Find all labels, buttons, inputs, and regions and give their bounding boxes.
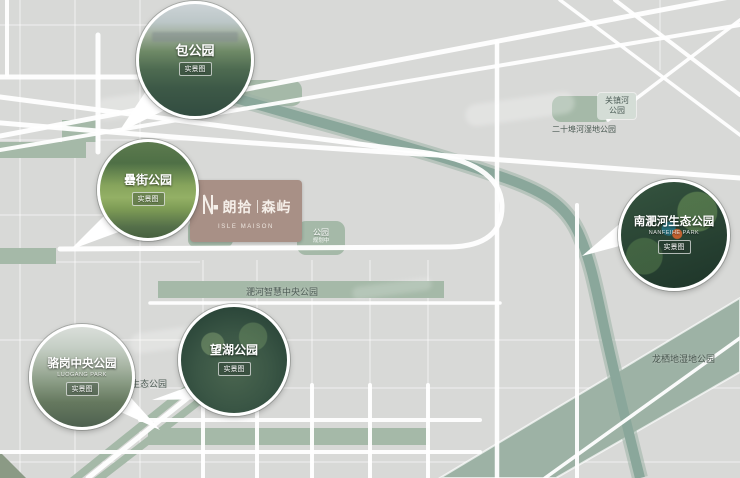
park-callout-wanghu: 望湖公园 实景图: [178, 304, 290, 416]
photo-badge: 实景图: [66, 382, 99, 396]
photo-badge: 实景图: [132, 192, 165, 206]
project-name-english: ISLE MAISON: [218, 224, 274, 230]
park-callout-leijie: 罍街公园 实景图: [97, 139, 199, 241]
photo-skyline: [152, 32, 237, 42]
label-ershilipuhe-wetland-park: 二十埠河湿地公园: [552, 124, 616, 135]
project-name-left: 朗拾: [223, 197, 253, 217]
project-name-right: 森屿: [262, 197, 292, 217]
park-name: 骆岗中央公园: [48, 358, 117, 371]
park-callout-luogang: 骆岗中央公园 LUOGANG PARK 实景图: [29, 324, 135, 430]
park-callout-bao: 包公园 实景图: [136, 1, 254, 119]
park-name: 望湖公园: [210, 344, 258, 358]
park-name: 包公园: [175, 44, 214, 59]
label-guanzhenhe-line1: 关镇河: [605, 96, 629, 106]
logo-divider: [257, 200, 258, 213]
label-feihe-smart-central-park: 淝河智慧中央公园: [246, 285, 318, 298]
label-planned-park-2: 公园 规划中: [297, 229, 345, 244]
photo-badge: 实景图: [658, 240, 691, 254]
park-name: 罍街公园: [124, 174, 172, 188]
photo-badge: 实景图: [218, 362, 251, 376]
label-guanzhenhe-park: 关镇河 公园: [598, 93, 636, 119]
park-name: 南淝河生态公园: [634, 216, 715, 229]
park-name-english: NANFEIHE PARK: [649, 230, 699, 236]
location-map: 淝河智慧中央公园 淝河生态公园 龙栖地湿地公园 二十埠河湿地公园 关镇河 公园 …: [0, 0, 740, 478]
photo-badge: 实景图: [179, 62, 212, 76]
park-callout-nanfeihe: 南淝河生态公园 NANFEIHE PARK 实景图: [618, 179, 730, 291]
park-name-english: LUOGANG PARK: [57, 372, 107, 378]
project-logo-card: 朗拾 森屿 ISLE MAISON: [190, 180, 302, 242]
project-logo-mark-icon: [201, 192, 219, 221]
label-guanzhenhe-line2: 公园: [609, 106, 625, 116]
label-longqidi-wetland-park: 龙栖地湿地公园: [652, 352, 715, 365]
